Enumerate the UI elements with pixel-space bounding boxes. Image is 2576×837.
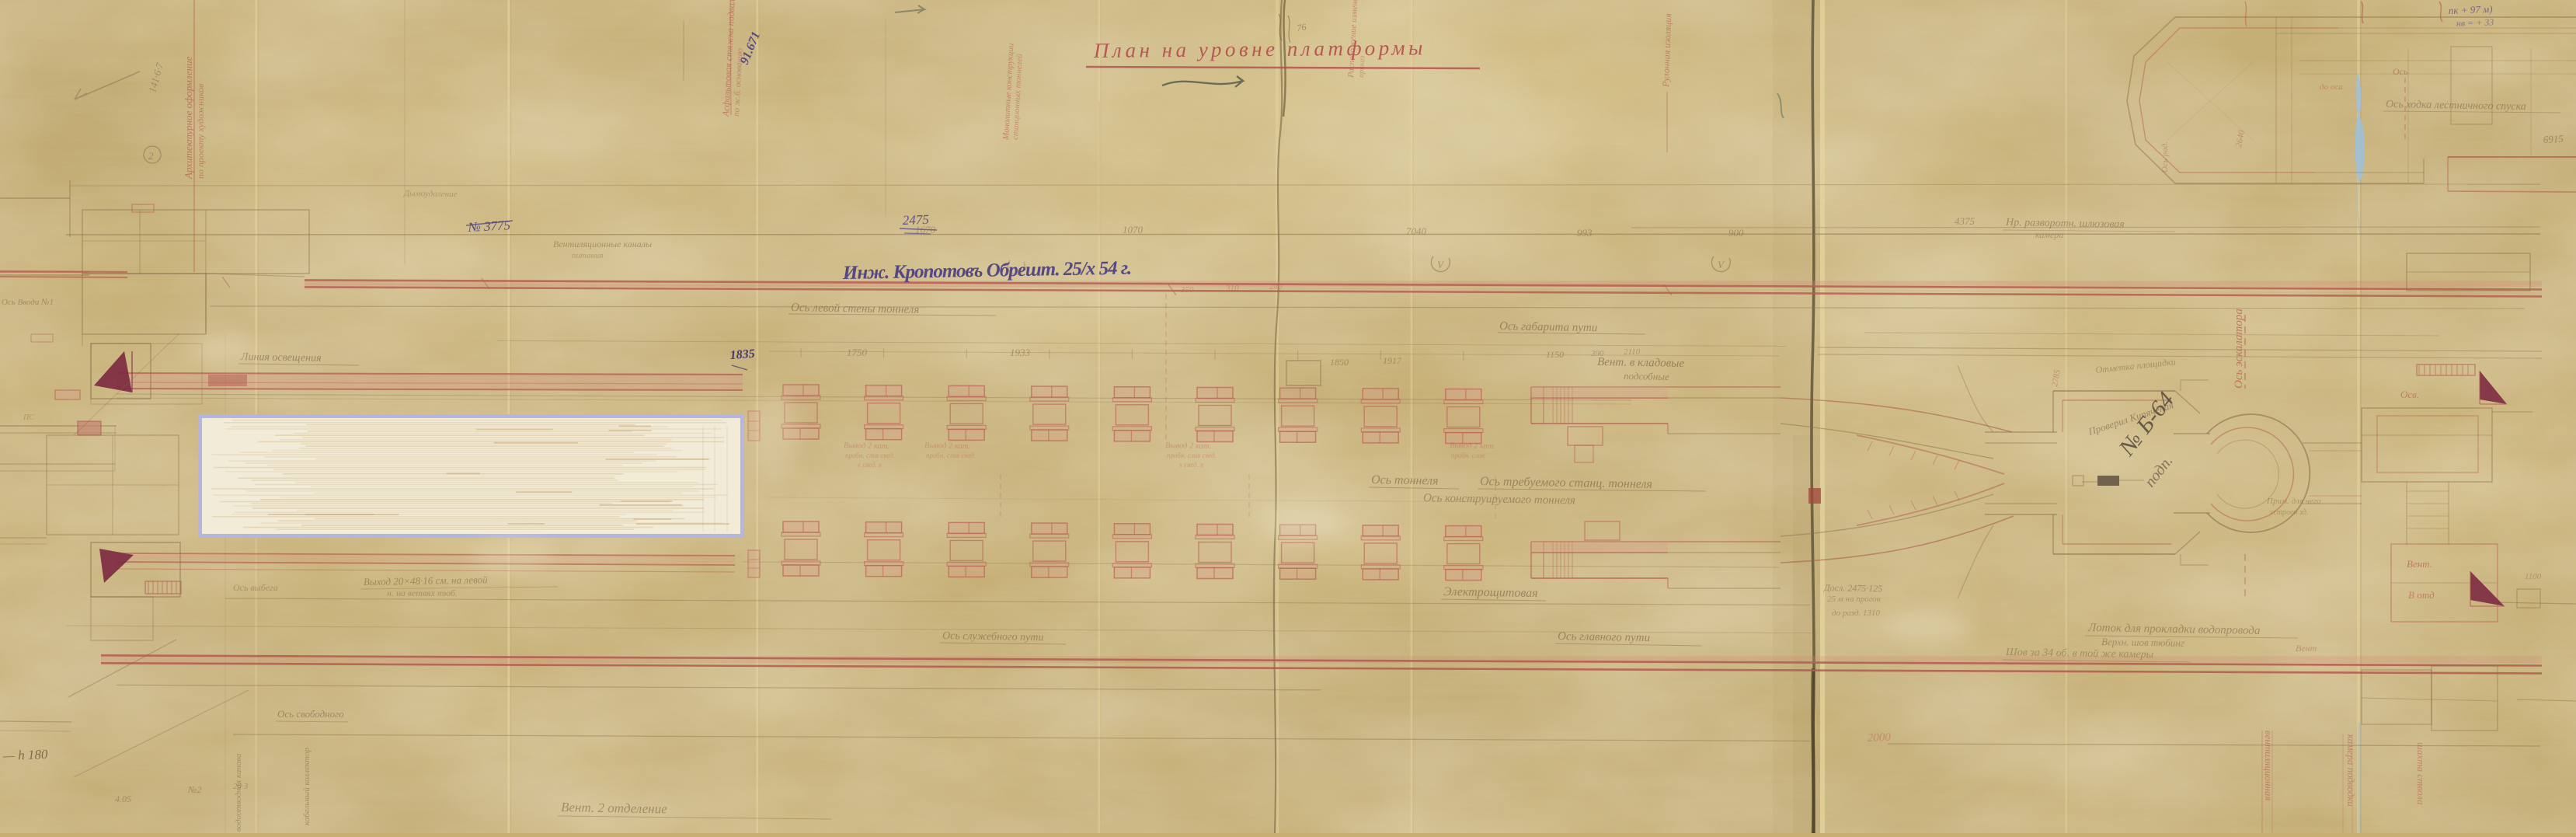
svg-text:Вент. в кладовые: Вент. в кладовые [1597,356,1685,370]
svg-text:1917: 1917 [1383,355,1402,366]
svg-text:Вывод 2 кат.: Вывод 2 кат. [1450,441,1495,451]
svg-text:Ось главного пути: Ось главного пути [1558,630,1650,644]
svg-text:4.05: 4.05 [115,793,131,804]
svg-text:№ 3775: № 3775 [467,218,510,235]
svg-text:Досл. 2475·125: Досл. 2475·125 [1823,582,1882,594]
svg-text:1100: 1100 [2525,572,2542,581]
svg-text:Вывод 2 кат.: Вывод 2 кат. [1165,441,1211,451]
svg-text:993: 993 [1577,227,1593,239]
svg-text:н. на ветвях тюб.: н. на ветвях тюб. [387,588,458,598]
svg-text:1850: 1850 [1330,357,1349,368]
svg-text:камера подводки: камера подводки [2345,734,2357,807]
svg-text:вентиляционная: вентиляционная [2263,731,2275,800]
svg-text:900: 900 [1728,227,1744,239]
svg-text:В отд: В отд [2408,589,2435,601]
svg-text:шахта ствола: шахта ствола [2415,742,2427,805]
svg-text:до разд. 1310: до разд. 1310 [1832,609,1881,618]
svg-text:6915: 6915 [2543,133,2564,145]
svg-text:Вентиляционные каналы: Вентиляционные каналы [553,239,652,249]
svg-text:пробн. слив свед.: пробн. слив свед. [845,452,895,459]
svg-text:2: 2 [148,150,154,162]
svg-text:2000: 2000 [1868,731,1892,745]
svg-text:питания: питания [572,251,604,260]
svg-text:1933: 1933 [1010,347,1031,358]
svg-text:пробн. слив: пробн. слив [1451,452,1485,459]
svg-text:подсобные: подсобные [1624,370,1669,382]
svg-text:нв = + 33: нв = + 33 [2456,16,2494,29]
svg-text:Дымоудаление: Дымоудаление [403,189,458,199]
svg-text:4375: 4375 [1955,215,1976,227]
svg-text:1750: 1750 [847,347,868,358]
svg-text:390: 390 [1590,349,1604,358]
svg-text:Выход 20×48·16 см. на левой: Выход 20×48·16 см. на левой [364,574,488,588]
svg-text:по проекту художников: по проекту художников [195,84,206,179]
svg-text:Вент: Вент [2296,643,2317,654]
svg-text:Ось Ввода №1: Ось Ввода №1 [2,298,54,307]
svg-text:устроен зд.: устроен зд. [2269,508,2308,517]
svg-text:1835: 1835 [729,347,755,362]
svg-text:Прим. для чего: Прим. для чего [2266,497,2321,506]
svg-text:350: 350 [1180,285,1194,295]
svg-text:7040: 7040 [1406,225,1427,237]
svg-text:Ось свободного: Ось свободного [277,708,344,720]
svg-text:Ось тоннеля: Ось тоннеля [1371,473,1439,488]
svg-text:План на уровне платформы: План на уровне платформы [1093,36,1426,62]
svg-text:ПС: ПС [23,413,34,422]
svg-text:№2: №2 [187,784,201,795]
svg-text:Электрощитовая: Электрощитовая [1443,585,1538,600]
svg-text:Вент. 2 отделение: Вент. 2 отделение [561,800,667,816]
svg-text:кабельный коллектор: кабельный коллектор [302,747,312,825]
svg-text:пк + 97 м): пк + 97 м) [2449,3,2493,16]
svg-text:25 м на прогон: 25 м на прогон [1827,595,1882,604]
svg-text:Верхн. шов тюбинг: Верхн. шов тюбинг [2101,636,2184,649]
svg-text:Вывод 2 кат.: Вывод 2 кат. [924,441,970,451]
svg-text:Нр. разворотн. шлюзовая: Нр. разворотн. шлюзовая [2005,217,2125,231]
svg-text:76: 76 [1296,21,1307,33]
svg-text:Ось конструируемого тоннеля: Ось конструируемого тоннеля [1423,492,1575,507]
svg-text:Вывод 2 кат.: Вывод 2 кат. [844,441,889,451]
svg-text:1070: 1070 [1123,224,1144,235]
svg-text:— h 180: — h 180 [2,747,48,763]
svg-text:к свед. в: к свед. в [858,461,882,469]
svg-text:пробн. слив свед.: пробн. слив свед. [1167,452,1217,459]
svg-text:20·3: 20·3 [233,782,249,791]
svg-text:Ось выбега: Ось выбега [233,582,278,593]
svg-text:приказ: приказ [1357,55,1366,78]
svg-text:Ось габарита пути: Ось габарита пути [1499,320,1597,334]
svg-text:310: 310 [1225,284,1239,293]
svg-text:1150: 1150 [1546,349,1564,360]
svg-text:2110: 2110 [1624,347,1641,357]
svg-text:240: 240 [1269,282,1283,291]
svg-text:Ось служебного пути: Ось служебного пути [942,630,1044,643]
svg-text:Архитектурное оформление: Архитектурное оформление [183,56,194,180]
svg-text:Ось: Ось [2393,66,2408,77]
svg-text:Ось эскалатора: Ось эскалатора [2233,309,2245,389]
svg-text:до оси: до оси [2320,82,2343,92]
svg-text:Ось ходка лестничного спуска: Ось ходка лестничного спуска [2386,99,2526,113]
svg-text:Вент.: Вент. [2407,558,2432,570]
svg-text:к свед. в: к свед. в [1179,461,1203,469]
svg-text:Осв.: Осв. [2400,389,2419,400]
svg-text:1670: 1670 [915,224,936,235]
svg-text:Ось рад.: Ось рад. [2160,141,2170,173]
svg-text:пробн. слив свед.: пробн. слив свед. [926,452,976,459]
svg-text:водоотводная канава: водоотводная канава [234,753,243,832]
